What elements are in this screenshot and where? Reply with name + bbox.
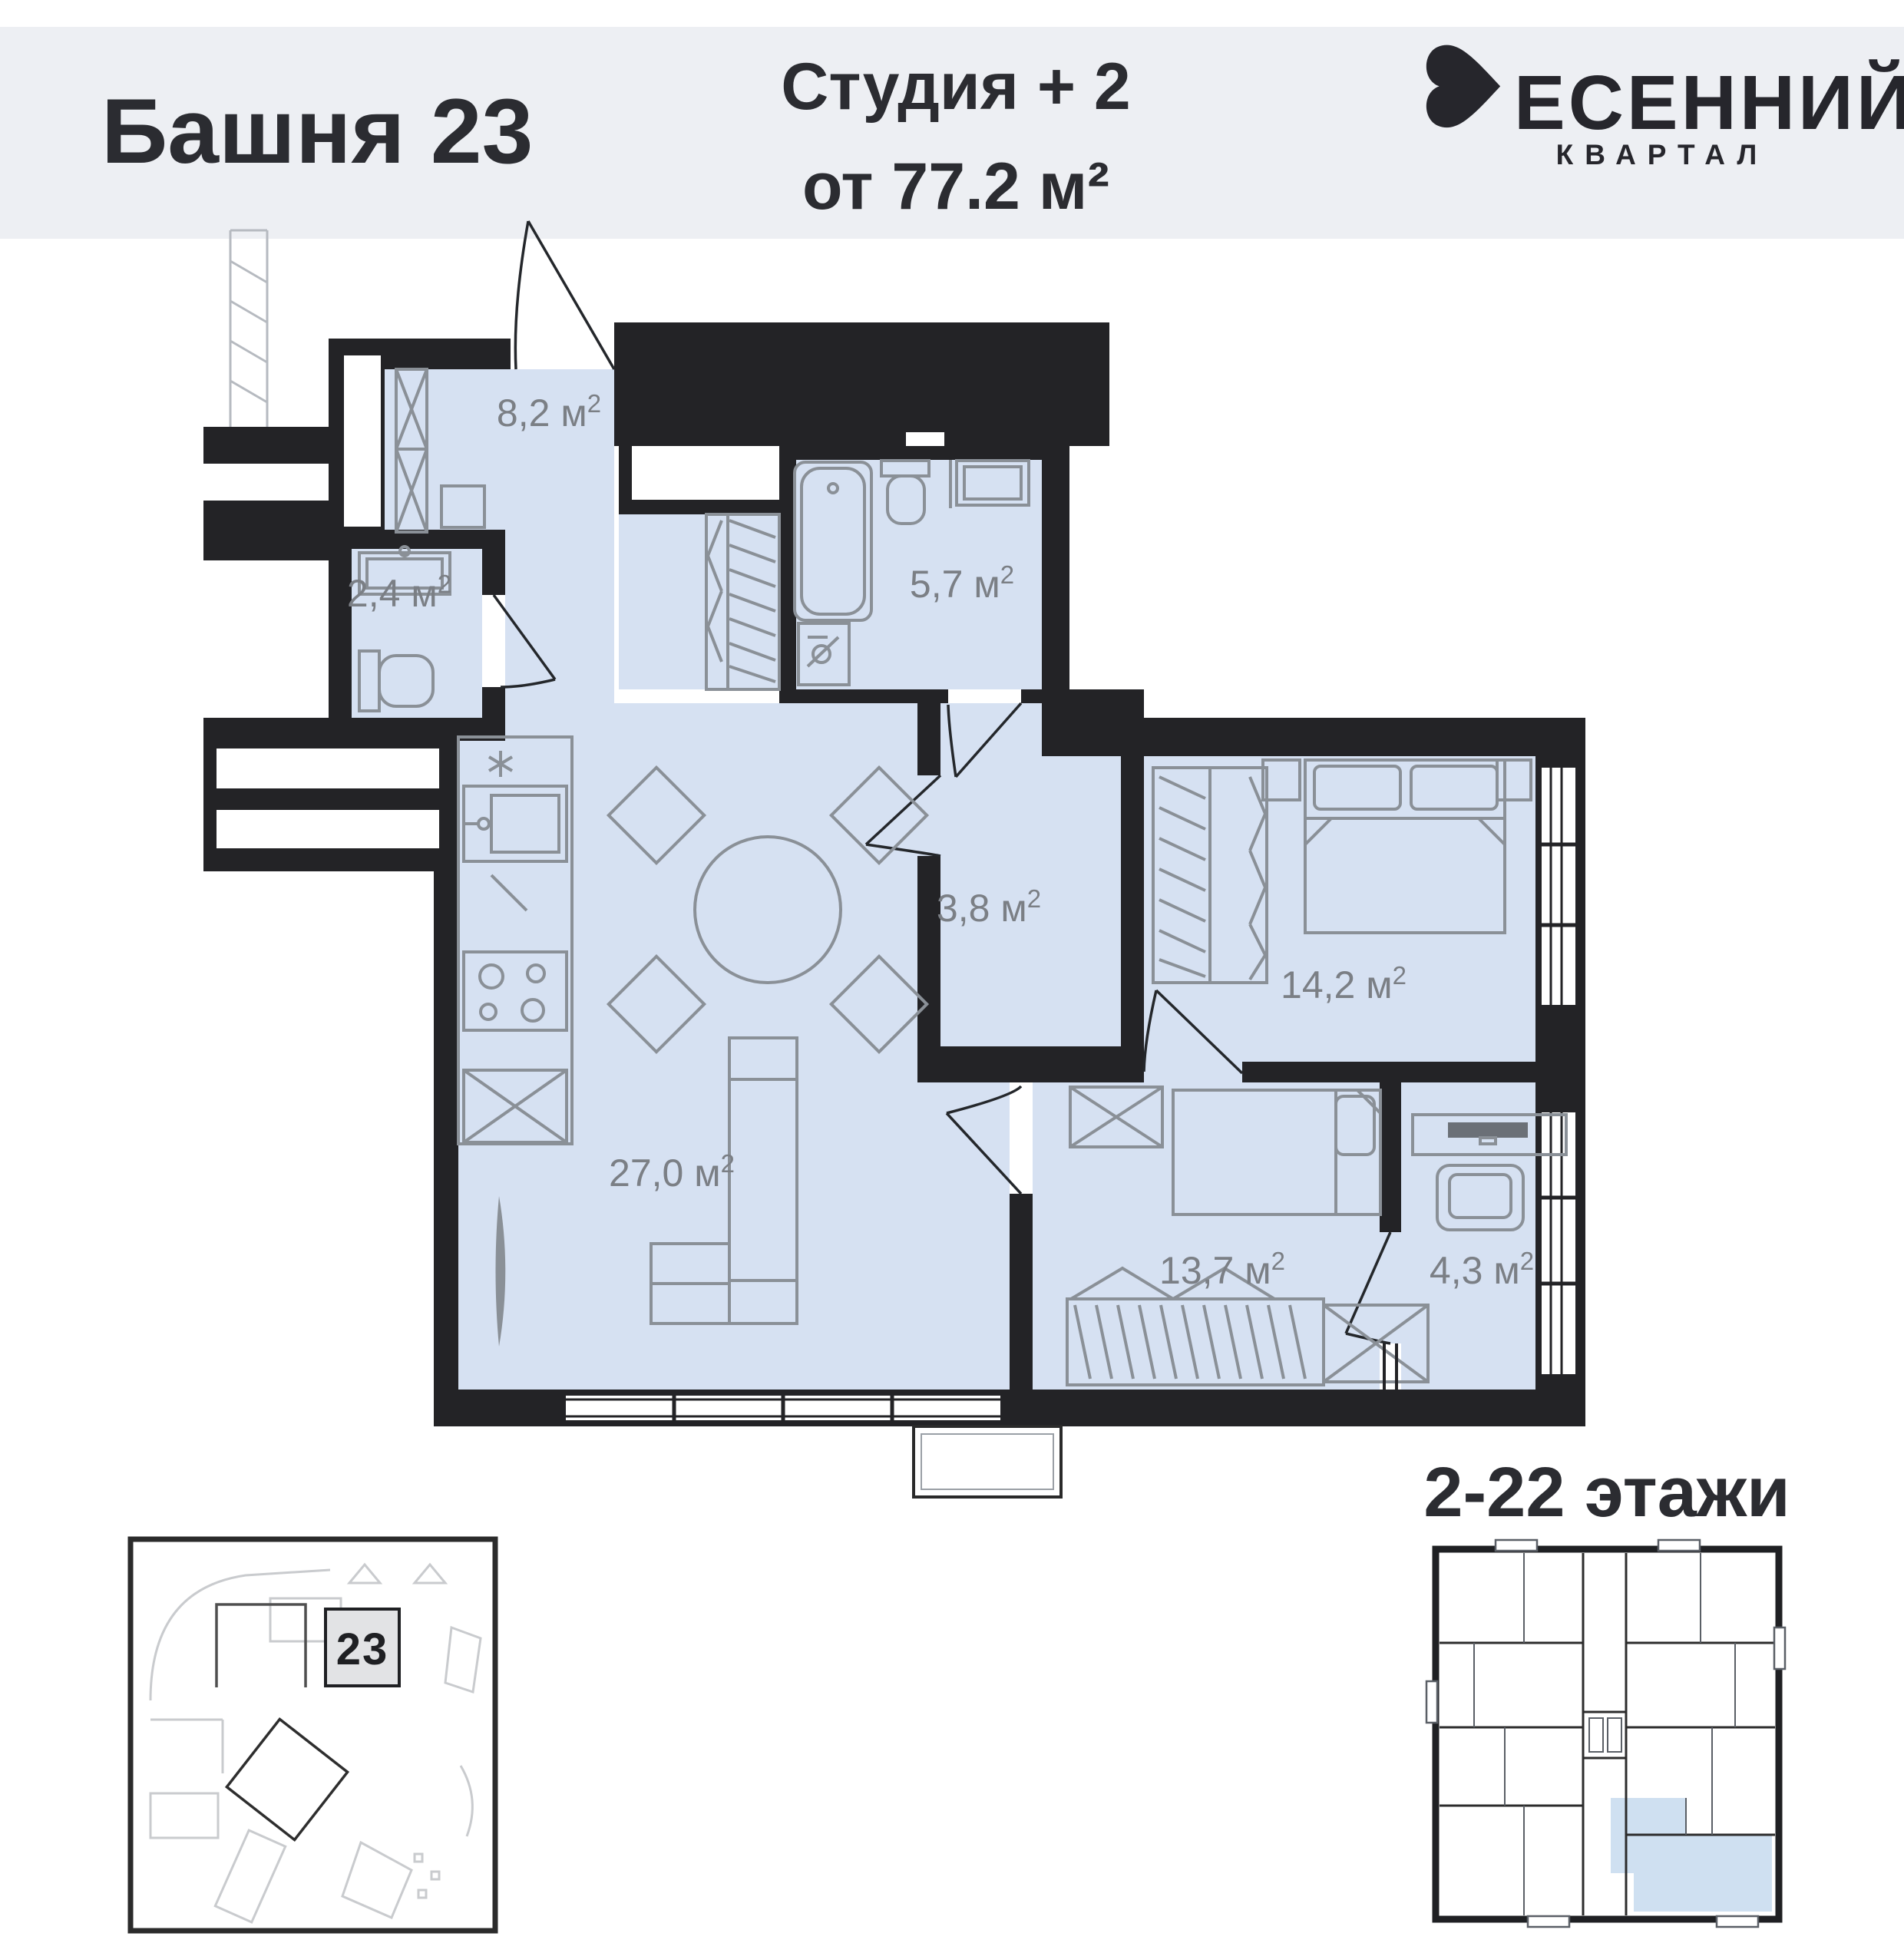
monitor-icon bbox=[1448, 1122, 1528, 1138]
room-area-label: 4,3 м2 bbox=[1430, 1247, 1534, 1292]
room-kids-floor bbox=[1033, 1082, 1380, 1390]
bedroom-door-gap bbox=[1144, 1062, 1242, 1082]
flyer-page: Башня 23 Студия + 2 от 77.2 м² ЕСЕННИЙ К… bbox=[0, 0, 1904, 1949]
room-bedroom-floor bbox=[1144, 756, 1535, 1062]
bath-door-opening bbox=[948, 689, 1021, 703]
service-slot-1 bbox=[217, 748, 439, 788]
room-area-label: 5,7 м2 bbox=[910, 560, 1014, 606]
unit-area: от 77.2 м² bbox=[802, 150, 1109, 223]
site-map-highlight: 23 bbox=[326, 1609, 399, 1686]
room-area-label: 8,2 м2 bbox=[497, 389, 601, 435]
floors-plan-highlight bbox=[1611, 1798, 1772, 1912]
shaft-slot bbox=[344, 355, 381, 527]
niche bbox=[632, 446, 779, 500]
header-band: Башня 23 Студия + 2 от 77.2 м² ЕСЕННИЙ К… bbox=[0, 27, 1904, 239]
brand-sub: КВАРТАЛ bbox=[1556, 139, 1769, 170]
room-area-label: 2,4 м2 bbox=[347, 570, 451, 615]
bedroom-window bbox=[1542, 768, 1575, 1005]
floor-plan: 8,2 м2 2,4 м2 5,7 м2 3,8 м2 14,2 м2 27,0… bbox=[203, 221, 1585, 1497]
wc-door-opening bbox=[482, 595, 505, 687]
room-area-label: 14,2 м2 bbox=[1281, 961, 1407, 1006]
neighbour-outline bbox=[230, 230, 267, 427]
service-slot-2 bbox=[217, 810, 439, 848]
wardrobe-zone-floor bbox=[619, 514, 779, 689]
site-map-building-number: 23 bbox=[336, 1624, 389, 1674]
vent-slot bbox=[906, 432, 944, 446]
room-floors bbox=[352, 369, 1535, 1390]
brand-word: ЕСЕННИЙ bbox=[1514, 59, 1904, 146]
tower-title: Башня 23 bbox=[101, 80, 533, 183]
floors-range-label: 2-22 этажи bbox=[1423, 1453, 1790, 1532]
room-area-label: 13,7 м2 bbox=[1159, 1247, 1285, 1292]
balcony-basket bbox=[914, 1426, 1061, 1497]
room-area-label: 27,0 м2 bbox=[609, 1149, 735, 1195]
room-area-label: 3,8 м2 bbox=[937, 884, 1041, 930]
unit-type: Студия + 2 bbox=[781, 50, 1131, 124]
floors-mini-plan: 2-22 этажи bbox=[1423, 1453, 1790, 1927]
study-window bbox=[1542, 1112, 1575, 1374]
living-window bbox=[566, 1396, 1000, 1420]
site-map: 23 bbox=[131, 1539, 495, 1931]
flyer-canvas: Башня 23 Студия + 2 от 77.2 м² ЕСЕННИЙ К… bbox=[0, 0, 1904, 1949]
